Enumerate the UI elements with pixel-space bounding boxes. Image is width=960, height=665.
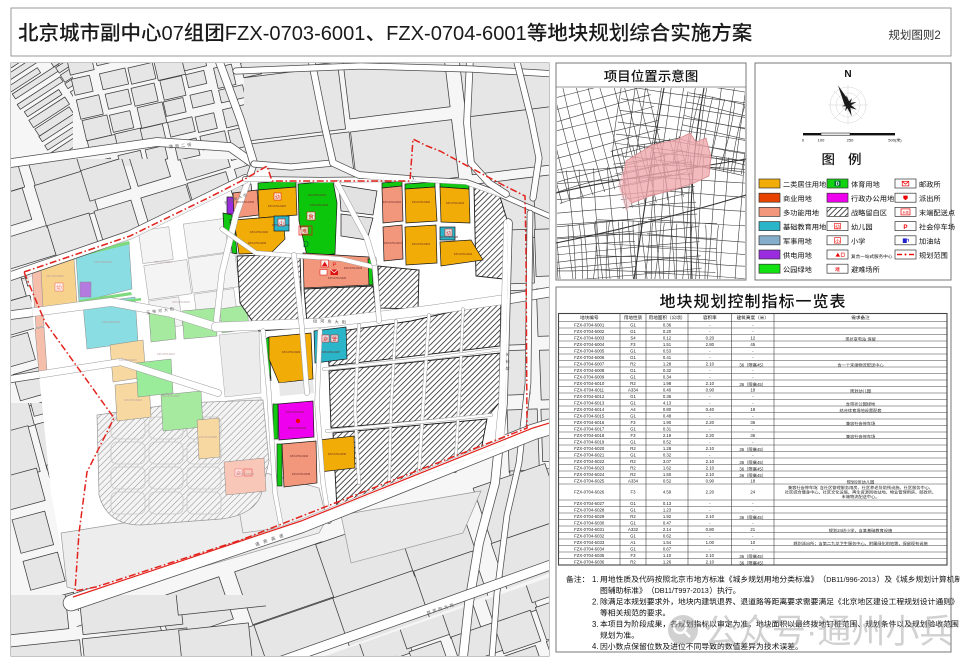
svg-text:45: 45 [750, 342, 755, 347]
svg-text:FZX-0704-6020: FZX-0704-6020 [574, 446, 605, 451]
svg-text:DB11/996-2013: DB11/996-2013 [826, 576, 876, 584]
svg-text:1.62: 1.62 [663, 465, 672, 470]
svg-text:FZX-0704-6007: FZX-0704-6007 [574, 361, 605, 366]
svg-text:12: 12 [750, 335, 755, 340]
svg-text:FZX-0704-6024: FZX-0704-6024 [574, 472, 605, 477]
svg-text:FZX-0704-6034: FZX-0704-6034 [290, 454, 309, 458]
svg-text:FZX-0704-6009: FZX-0704-6009 [574, 374, 605, 379]
svg-text:2.10: 2.10 [706, 361, 715, 366]
svg-text:1.51: 1.51 [663, 342, 672, 347]
svg-text:250: 250 [847, 138, 854, 143]
svg-text:G1: G1 [630, 533, 636, 538]
svg-text:0.80: 0.80 [706, 527, 715, 532]
svg-text:FZX-0704-6010: FZX-0704-6010 [574, 381, 605, 386]
svg-text:45: 45 [757, 515, 762, 520]
svg-text:0.48: 0.48 [663, 413, 672, 418]
svg-text:FZX-0703-6006: FZX-0703-6006 [94, 261, 112, 264]
svg-text:2.10: 2.10 [706, 472, 715, 477]
svg-text:R2: R2 [630, 465, 636, 470]
svg-text:1.90: 1.90 [663, 420, 672, 425]
svg-text:2.80: 2.80 [706, 342, 715, 347]
svg-text:18: 18 [750, 478, 755, 483]
svg-text:DB11/T997-2013: DB11/T997-2013 [655, 587, 709, 595]
svg-text:A334: A334 [628, 387, 639, 392]
svg-text:FZX-0704-6025: FZX-0704-6025 [574, 478, 605, 483]
svg-text:G1: G1 [630, 439, 636, 444]
svg-text:1.23: 1.23 [663, 507, 672, 512]
svg-text:FZX-0704-6001: FZX-0704-6001 [386, 23, 527, 45]
svg-text:G1: G1 [630, 452, 636, 457]
svg-text:·: · [806, 613, 817, 651]
svg-text:36: 36 [750, 433, 755, 438]
svg-text:36: 36 [750, 420, 755, 425]
svg-text:1.54: 1.54 [663, 540, 672, 545]
svg-text:0.53: 0.53 [663, 348, 672, 353]
svg-text:N: N [844, 69, 851, 80]
svg-text:500(: 500( [888, 138, 897, 143]
svg-text:45: 45 [757, 554, 762, 559]
svg-text:G1: G1 [630, 329, 636, 334]
svg-text:FZX-0704-6024: FZX-0704-6024 [454, 252, 473, 256]
svg-text:A4: A4 [630, 407, 636, 412]
svg-text:18: 18 [750, 387, 755, 392]
svg-text:FZX-0703-6027: FZX-0703-6027 [162, 395, 180, 398]
svg-text:FZX-0703-6001: FZX-0703-6001 [225, 23, 366, 45]
svg-text:0.67: 0.67 [663, 546, 672, 551]
svg-text:1.28: 1.28 [663, 446, 672, 451]
svg-text:2.: 2. [592, 597, 599, 606]
svg-text:FZX-0704-6005: FZX-0704-6005 [236, 200, 255, 204]
svg-text:R2: R2 [630, 361, 636, 366]
svg-text:24: 24 [750, 490, 755, 495]
svg-text:A332: A332 [628, 527, 639, 532]
svg-text:4.13: 4.13 [663, 400, 672, 405]
svg-text:FZX-0704-6033: FZX-0704-6033 [574, 540, 605, 545]
svg-text:FZX-0704-6013: FZX-0704-6013 [310, 203, 329, 207]
svg-text:2.10: 2.10 [706, 459, 715, 464]
svg-text:D: D [303, 240, 309, 249]
svg-text:0.12: 0.12 [663, 335, 672, 340]
svg-text:FZX-0704-6003: FZX-0704-6003 [574, 335, 605, 340]
svg-text:R2: R2 [630, 459, 636, 464]
svg-text:FZX-0704-6002: FZX-0704-6002 [574, 329, 605, 334]
svg-text:FZX-0704-6029: FZX-0704-6029 [282, 350, 301, 354]
svg-text:0.36: 0.36 [663, 394, 672, 399]
svg-text:G1: G1 [630, 322, 636, 327]
svg-text:FZX-0703-6014: FZX-0703-6014 [154, 261, 172, 264]
svg-text:FZX-0703-6028: FZX-0703-6028 [199, 436, 217, 439]
svg-text:FZX-0704-6007: FZX-0704-6007 [268, 204, 287, 208]
svg-text:2.10: 2.10 [706, 381, 715, 386]
svg-text:R2: R2 [630, 381, 636, 386]
svg-text:F3: F3 [630, 553, 636, 558]
svg-text:0.13: 0.13 [663, 501, 672, 506]
svg-text:0.31: 0.31 [663, 426, 672, 431]
svg-text:FZX-0704-6026: FZX-0704-6026 [574, 490, 605, 495]
svg-text:FZX-0704-6022: FZX-0704-6022 [574, 459, 605, 464]
svg-text:36: 36 [739, 515, 744, 520]
svg-text:36: 36 [739, 460, 744, 465]
svg-text:G1: G1 [630, 400, 636, 405]
svg-text:FZX-0704-6011: FZX-0704-6011 [272, 223, 291, 227]
svg-text:FZX-0704-6015: FZX-0704-6015 [574, 413, 605, 418]
svg-text:D: D [836, 182, 840, 188]
svg-text:P: P [333, 263, 337, 269]
svg-text:FZX-0704-6023: FZX-0704-6023 [412, 242, 431, 246]
svg-text:FZX-0703-6024: FZX-0703-6024 [124, 399, 142, 402]
svg-text:R2: R2 [630, 472, 636, 477]
svg-text:FZX-0704-6012: FZX-0704-6012 [574, 394, 605, 399]
svg-text:36: 36 [739, 363, 744, 368]
svg-text:FZX-0704-6022: FZX-0704-6022 [446, 201, 465, 205]
svg-text:0.40: 0.40 [706, 407, 715, 412]
svg-text:36: 36 [739, 467, 744, 472]
svg-text:FZX-0704-6017: FZX-0704-6017 [574, 426, 605, 431]
svg-text:2.10: 2.10 [706, 514, 715, 519]
svg-text:FZX-0704-6016: FZX-0704-6016 [574, 420, 605, 425]
svg-text:FZX-0704-6023: FZX-0704-6023 [574, 465, 605, 470]
svg-text:FZX-0704-6031: FZX-0704-6031 [286, 410, 305, 414]
svg-text:FZX-0704-6013: FZX-0704-6013 [574, 400, 605, 405]
svg-text:G1: G1 [630, 394, 636, 399]
svg-text:FZX-0704-6027: FZX-0704-6027 [574, 501, 605, 506]
svg-text:FZX-0704-6028: FZX-0704-6028 [574, 507, 605, 512]
svg-text:2.14: 2.14 [663, 527, 672, 532]
svg-text:A334: A334 [628, 478, 639, 483]
svg-text:3.07: 3.07 [663, 459, 672, 464]
svg-text:2.10: 2.10 [706, 559, 715, 564]
svg-text:FZX-0704-6032: FZX-0704-6032 [574, 533, 605, 538]
svg-text:FZX-0703-6002: FZX-0703-6002 [46, 275, 64, 278]
svg-text:FZX-0704-6025: FZX-0704-6025 [440, 235, 459, 239]
svg-text:FZX-0703-6016: FZX-0703-6016 [119, 359, 137, 362]
svg-text:36: 36 [739, 447, 744, 452]
svg-text:45: 45 [757, 447, 762, 452]
svg-text:F3: F3 [630, 490, 636, 495]
svg-text:2.19: 2.19 [663, 433, 672, 438]
svg-text:1.10: 1.10 [663, 553, 672, 558]
svg-text:F3: F3 [630, 420, 636, 425]
svg-text:FZX-0704-6001: FZX-0704-6001 [574, 322, 605, 327]
svg-text:0.32: 0.32 [663, 368, 672, 373]
svg-text:36: 36 [739, 382, 744, 387]
svg-text:FZX-0703-6008: FZX-0703-6008 [102, 321, 120, 324]
svg-text:FZX-0704-6014: FZX-0704-6014 [574, 407, 605, 412]
svg-text:FZX-0704-6011: FZX-0704-6011 [574, 387, 604, 392]
svg-text:F3: F3 [630, 433, 636, 438]
svg-text:G1: G1 [630, 348, 636, 353]
svg-text:0.36: 0.36 [663, 322, 672, 327]
svg-text:FZX-0704-6035: FZX-0704-6035 [292, 472, 311, 476]
svg-text:FZX-0704-6032: FZX-0704-6032 [288, 426, 307, 430]
svg-text:FZX-0704-6031: FZX-0704-6031 [574, 527, 605, 532]
svg-text:G1: G1 [630, 368, 636, 373]
svg-text:FZX-0703-6021: FZX-0703-6021 [157, 353, 175, 356]
svg-text:2.20: 2.20 [706, 420, 715, 425]
svg-text:A1: A1 [630, 540, 636, 545]
svg-text:2.20: 2.20 [706, 490, 715, 495]
svg-text:;: ; [817, 485, 818, 490]
svg-text:45: 45 [757, 363, 762, 368]
svg-text:45: 45 [757, 467, 762, 472]
svg-text:2.10: 2.10 [706, 553, 715, 558]
svg-text:FZX-0704-6019: FZX-0704-6019 [574, 439, 605, 444]
svg-text:0.41: 0.41 [663, 355, 672, 360]
svg-text:2.20: 2.20 [706, 433, 715, 438]
svg-text:36: 36 [739, 561, 744, 566]
svg-text:FZX-0704-6019: FZX-0704-6019 [344, 266, 363, 270]
svg-text:FZX-0704-6021: FZX-0704-6021 [574, 452, 605, 457]
svg-text:1.98: 1.98 [663, 381, 672, 386]
svg-text:0.32: 0.32 [663, 452, 672, 457]
svg-text:FZX-0703-6029: FZX-0703-6029 [236, 473, 254, 476]
svg-text:FZX-0704-6026: FZX-0704-6026 [328, 276, 347, 280]
svg-text:FZX-0704-6036: FZX-0704-6036 [574, 559, 605, 564]
svg-text:FZX-0704-6012: FZX-0704-6012 [308, 193, 327, 197]
svg-text:G1: G1 [630, 507, 636, 512]
svg-text:07: 07 [162, 23, 184, 45]
svg-text:0.52: 0.52 [663, 439, 672, 444]
svg-text:FZX-0704-6017: FZX-0704-6017 [384, 241, 403, 245]
svg-text:FZX-0704-6004: FZX-0704-6004 [574, 342, 605, 347]
svg-text:4.59: 4.59 [663, 490, 672, 495]
svg-text:0.80: 0.80 [663, 407, 672, 412]
svg-text:1.28: 1.28 [663, 361, 672, 366]
svg-text:S4: S4 [630, 335, 636, 340]
svg-text:G1: G1 [630, 520, 636, 525]
svg-text:36: 36 [739, 473, 744, 478]
svg-text:0.62: 0.62 [663, 533, 672, 538]
svg-text:FZX-0704-6027: FZX-0704-6027 [322, 350, 341, 354]
svg-text:0.47: 0.47 [663, 520, 672, 525]
svg-text:FZX-0704-6018: FZX-0704-6018 [574, 433, 605, 438]
svg-text:G1: G1 [630, 413, 636, 418]
svg-text:R2: R2 [630, 514, 636, 519]
svg-text:2: 2 [934, 30, 940, 42]
svg-text:1.92: 1.92 [663, 514, 672, 519]
svg-text:0.90: 0.90 [706, 387, 715, 392]
svg-text:45: 45 [757, 561, 762, 566]
svg-text:0.20: 0.20 [706, 335, 715, 340]
svg-text:FZX-0704-6008: FZX-0704-6008 [574, 368, 605, 373]
svg-text:36: 36 [739, 554, 744, 559]
svg-text:1.00: 1.00 [706, 540, 715, 545]
svg-text:4.: 4. [592, 642, 599, 651]
svg-text:FZX-0703-6018: FZX-0703-6018 [172, 301, 190, 304]
svg-text:F3: F3 [630, 342, 636, 347]
svg-text:21: 21 [750, 527, 755, 532]
svg-text:0.34: 0.34 [663, 374, 672, 379]
svg-text:24: 24 [837, 528, 842, 533]
svg-text:FZX-0704-6035: FZX-0704-6035 [574, 553, 605, 558]
svg-text:1.50: 1.50 [663, 472, 672, 477]
svg-text:FZX-0704-6036: FZX-0704-6036 [328, 452, 347, 456]
svg-text:G1: G1 [630, 546, 636, 551]
svg-text:10: 10 [750, 540, 755, 545]
svg-text:FZX-0704-6010: FZX-0704-6010 [250, 230, 269, 234]
svg-text:FZX-0704-6009: FZX-0704-6009 [248, 241, 267, 245]
svg-text:18: 18 [750, 407, 755, 412]
svg-text:G1: G1 [630, 355, 636, 360]
svg-text:45: 45 [757, 382, 762, 387]
svg-text:FZX-0704-6005: FZX-0704-6005 [574, 348, 605, 353]
svg-text:0.20: 0.20 [663, 329, 672, 334]
svg-text:45: 45 [757, 460, 762, 465]
svg-text:0.52: 0.52 [663, 478, 672, 483]
svg-text:G1: G1 [630, 426, 636, 431]
svg-text:FZX-0704-6020: FZX-0704-6020 [412, 200, 431, 204]
svg-text:P: P [903, 224, 907, 231]
svg-text:1.26: 1.26 [663, 559, 672, 564]
svg-text:0.40: 0.40 [663, 387, 672, 392]
svg-text:1.: 1. [592, 575, 599, 584]
svg-text:FZX-0704-6030: FZX-0704-6030 [574, 520, 605, 525]
svg-text:3.: 3. [592, 620, 599, 629]
svg-text:FZX-0704-6016: FZX-0704-6016 [383, 200, 402, 204]
svg-text:G1: G1 [630, 501, 636, 506]
svg-text:FZX-0704-6006: FZX-0704-6006 [574, 355, 605, 360]
svg-text:45: 45 [757, 473, 762, 478]
svg-text:100: 100 [818, 138, 825, 143]
svg-text:G1: G1 [630, 374, 636, 379]
svg-text:FZX-0704-6029: FZX-0704-6029 [574, 514, 605, 519]
svg-text:0.90: 0.90 [706, 478, 715, 483]
svg-text:R2: R2 [630, 559, 636, 564]
svg-text:R2: R2 [630, 446, 636, 451]
svg-text:2.10: 2.10 [706, 465, 715, 470]
svg-text:FZX-0704-6034: FZX-0704-6034 [574, 546, 605, 551]
svg-text:2.10: 2.10 [706, 446, 715, 451]
